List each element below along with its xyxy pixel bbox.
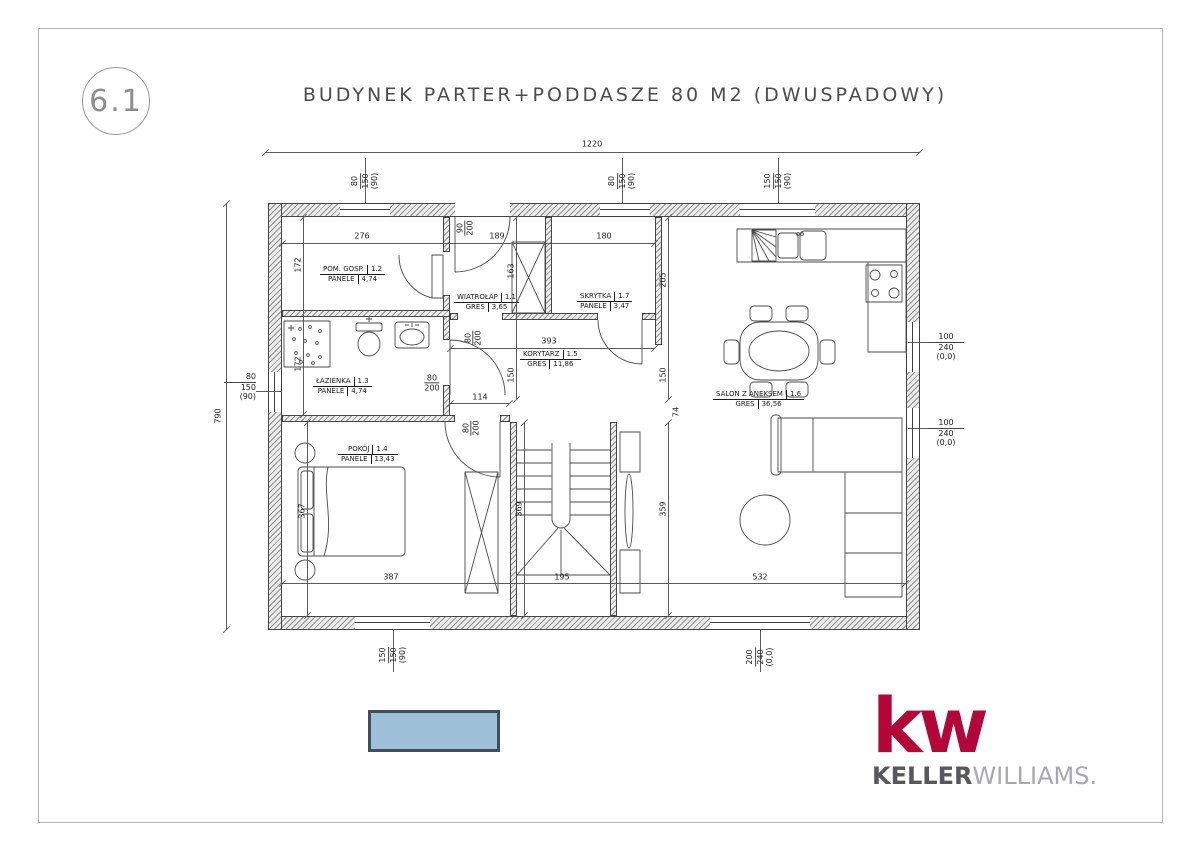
room-label-skrytka: SKRYTKA1.7 PANELE3,47	[577, 292, 632, 311]
door-size-tag: 80200	[463, 330, 482, 345]
dim-label: 172	[294, 356, 303, 371]
room-label-wiatrolap: WIATROŁAP1.1 GRES3,65	[454, 293, 519, 312]
dim-label: 195	[554, 573, 569, 582]
dimension-line	[450, 403, 510, 404]
room-label-salon: SALON Z ANEKSEM1.6 GRES36,56	[713, 390, 804, 409]
window-size-tag: 200240(0,0)	[745, 648, 775, 667]
legend-color-swatch	[368, 710, 500, 752]
dimension-line	[303, 217, 304, 415]
dim-label: 359	[659, 501, 668, 516]
dimension-line	[524, 422, 525, 616]
keller-williams-logo: kw KELLERWILLIAMS.	[872, 692, 1102, 790]
dim-label: 180	[596, 232, 611, 241]
dim-label: 276	[354, 232, 369, 241]
drawing-sheet: 6.1 BUDYNEK PARTER+PODDASZE 80 M2 (DWUSP…	[0, 0, 1200, 854]
dim-label: 393	[541, 337, 556, 346]
floor-plan: WIATROŁAP1.1 GRES3,65 POM. GOSP.1.2 PANE…	[268, 203, 920, 630]
kw-logo-mark: kw	[872, 692, 1102, 760]
dim-label: 74	[672, 407, 681, 417]
sheet-number: 6.1	[89, 84, 143, 119]
dimension-line	[516, 217, 517, 400]
drawing-title: BUDYNEK PARTER+PODDASZE 80 M2 (DWUSPADOW…	[303, 84, 947, 106]
dimension-line	[668, 217, 669, 400]
sheet-number-bubble: 6.1	[82, 67, 150, 135]
dim-label: 205	[659, 272, 668, 287]
room-label-pom-gosp: POM. GOSP.1.2 PANELE4,74	[320, 265, 385, 284]
dim-label: 532	[752, 573, 767, 582]
dim-label: 114	[472, 393, 487, 402]
room-label-lazienka: ŁAZIENKA1.3 PANELE4,74	[313, 377, 372, 396]
window-size-tag: 80150(90)	[224, 372, 256, 402]
window-size-tag: 150150(90)	[378, 647, 408, 663]
dim-label: 163	[507, 263, 516, 278]
dim-label: 790	[214, 408, 223, 423]
dimension-line	[307, 422, 308, 616]
leader-line	[256, 391, 282, 392]
dimension-line	[282, 243, 655, 244]
door-size-tag: 80200	[424, 373, 439, 392]
dim-label: 150	[507, 367, 516, 382]
door-size-tag: 90200	[455, 220, 474, 235]
dimension-line	[265, 152, 920, 153]
dim-label: 369	[515, 501, 524, 516]
room-label-korytarz: KORYTARZ1.5 GRES11,86	[520, 350, 581, 369]
kw-logo-name: KELLERWILLIAMS.	[872, 762, 1102, 790]
window-size-tag: 100240(0,0)	[928, 332, 964, 362]
window-size-tag: 80150(90)	[350, 173, 380, 189]
dimension-line	[668, 422, 669, 616]
dimension-line	[226, 203, 227, 630]
dim-label: 189	[489, 232, 504, 241]
dim-label: 1220	[582, 140, 602, 149]
window-size-tag: 100240(0,0)	[928, 418, 964, 448]
dim-label: 172	[294, 257, 303, 272]
dim-label: 367	[298, 503, 307, 518]
dimension-line	[282, 583, 906, 584]
room-label-pokoj: POKÓJ1.4 PANELE13,43	[338, 445, 398, 464]
door-size-tag: 80200	[461, 420, 480, 435]
dim-label: 150	[659, 367, 668, 382]
dim-label: 387	[383, 573, 398, 582]
window-size-tag: 80150(90)	[607, 173, 637, 189]
dimension-line	[450, 348, 655, 349]
window-size-tag: 150150(90)	[763, 173, 793, 189]
